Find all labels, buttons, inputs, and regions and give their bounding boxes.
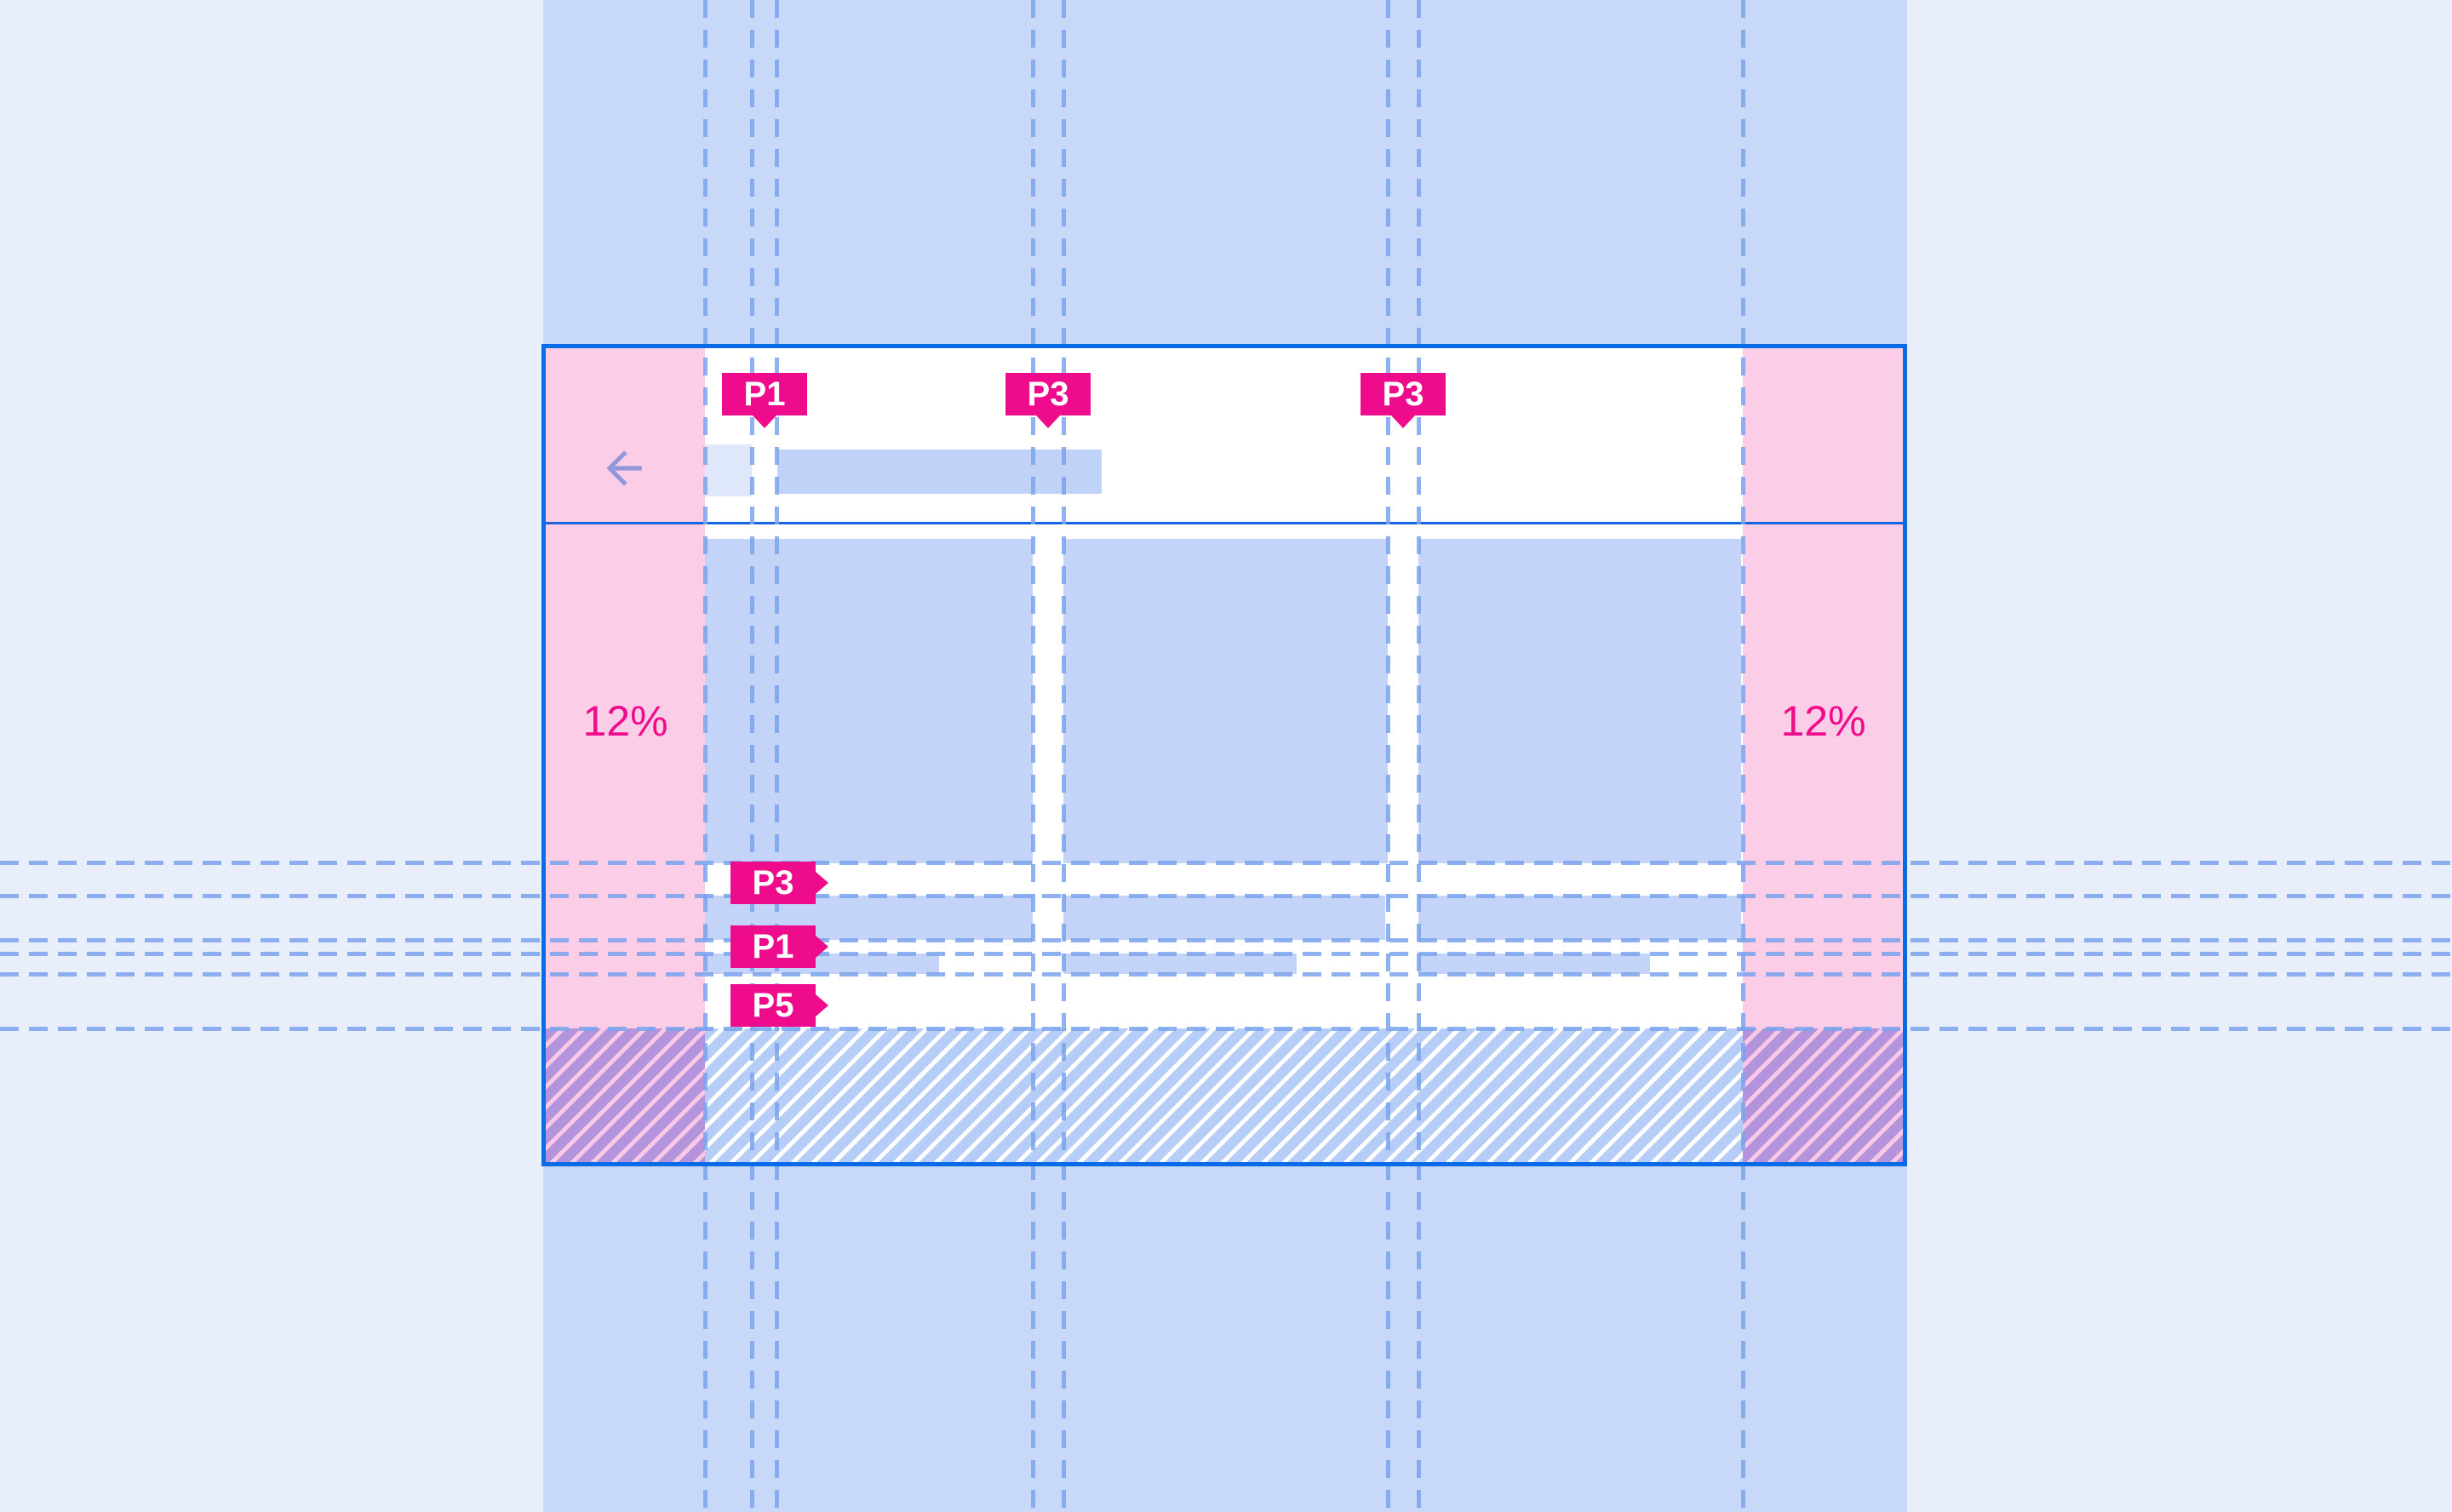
back-button[interactable] [598, 442, 650, 495]
padding-tag-label: P5 [753, 987, 794, 1025]
hatch-area-left-margin [546, 1028, 705, 1164]
padding-tag-top-p3b: P3 [1361, 373, 1446, 415]
padding-tag-label: P3 [1383, 375, 1424, 414]
padding-tag-label: P3 [1028, 375, 1069, 414]
pointer-down-icon [1036, 415, 1060, 428]
padding-tag-top-p3: P3 [1005, 373, 1091, 415]
margin-label: 12% [1780, 696, 1865, 746]
keyline-vertical [750, 0, 754, 1512]
pointer-right-icon [816, 994, 828, 1017]
hatch-area-right-margin [1743, 1028, 1904, 1164]
keyline-vertical [1031, 0, 1035, 1512]
hatch-area-content [705, 1028, 1743, 1164]
list-row-placeholder [1418, 896, 1741, 940]
list-row-placeholder [1063, 896, 1385, 940]
padding-tag-label: P1 [753, 928, 794, 966]
keyline-vertical [1741, 0, 1745, 1512]
padding-tag-label: P3 [753, 864, 794, 902]
left-margin-percентage: 12% [546, 696, 705, 746]
right-margin-percentage: 12% [1743, 696, 1904, 746]
keyline-vertical [775, 0, 779, 1512]
list-row-placeholder [1418, 954, 1650, 974]
pointer-down-icon [1391, 415, 1415, 428]
keyline-vertical [1417, 0, 1421, 1512]
card-placeholder [1418, 539, 1741, 863]
padding-tag-top-p1: P1 [722, 373, 807, 415]
back-arrow-icon [598, 484, 650, 498]
padding-tag-row-p1: P1 [730, 925, 816, 968]
keyline-horizontal [0, 894, 2452, 898]
pointer-right-icon [816, 872, 828, 894]
card-placeholder [1063, 539, 1388, 863]
layout-spec-canvas: P1 P3 P3 P3 P1 P5 12% 12% [0, 0, 2452, 1512]
pointer-down-icon [753, 415, 776, 428]
list-row-placeholder [1063, 954, 1297, 974]
padding-tag-row-p3: P3 [730, 862, 816, 904]
keyline-horizontal [0, 972, 2452, 976]
margin-label: 12% [582, 696, 667, 746]
pointer-right-icon [816, 936, 828, 958]
keyline-horizontal [0, 1027, 2452, 1031]
keyline-horizontal [0, 938, 2452, 942]
header-icon-placeholder [705, 444, 752, 496]
keyline-vertical [703, 0, 708, 1512]
keyline-vertical [1386, 0, 1390, 1512]
title-text-placeholder [777, 450, 1102, 494]
keyline-horizontal [0, 952, 2452, 956]
padding-tag-row-p5: P5 [730, 984, 816, 1027]
padding-tag-label: P1 [744, 375, 786, 414]
keyline-horizontal [0, 861, 2452, 865]
keyline-vertical [1062, 0, 1066, 1512]
